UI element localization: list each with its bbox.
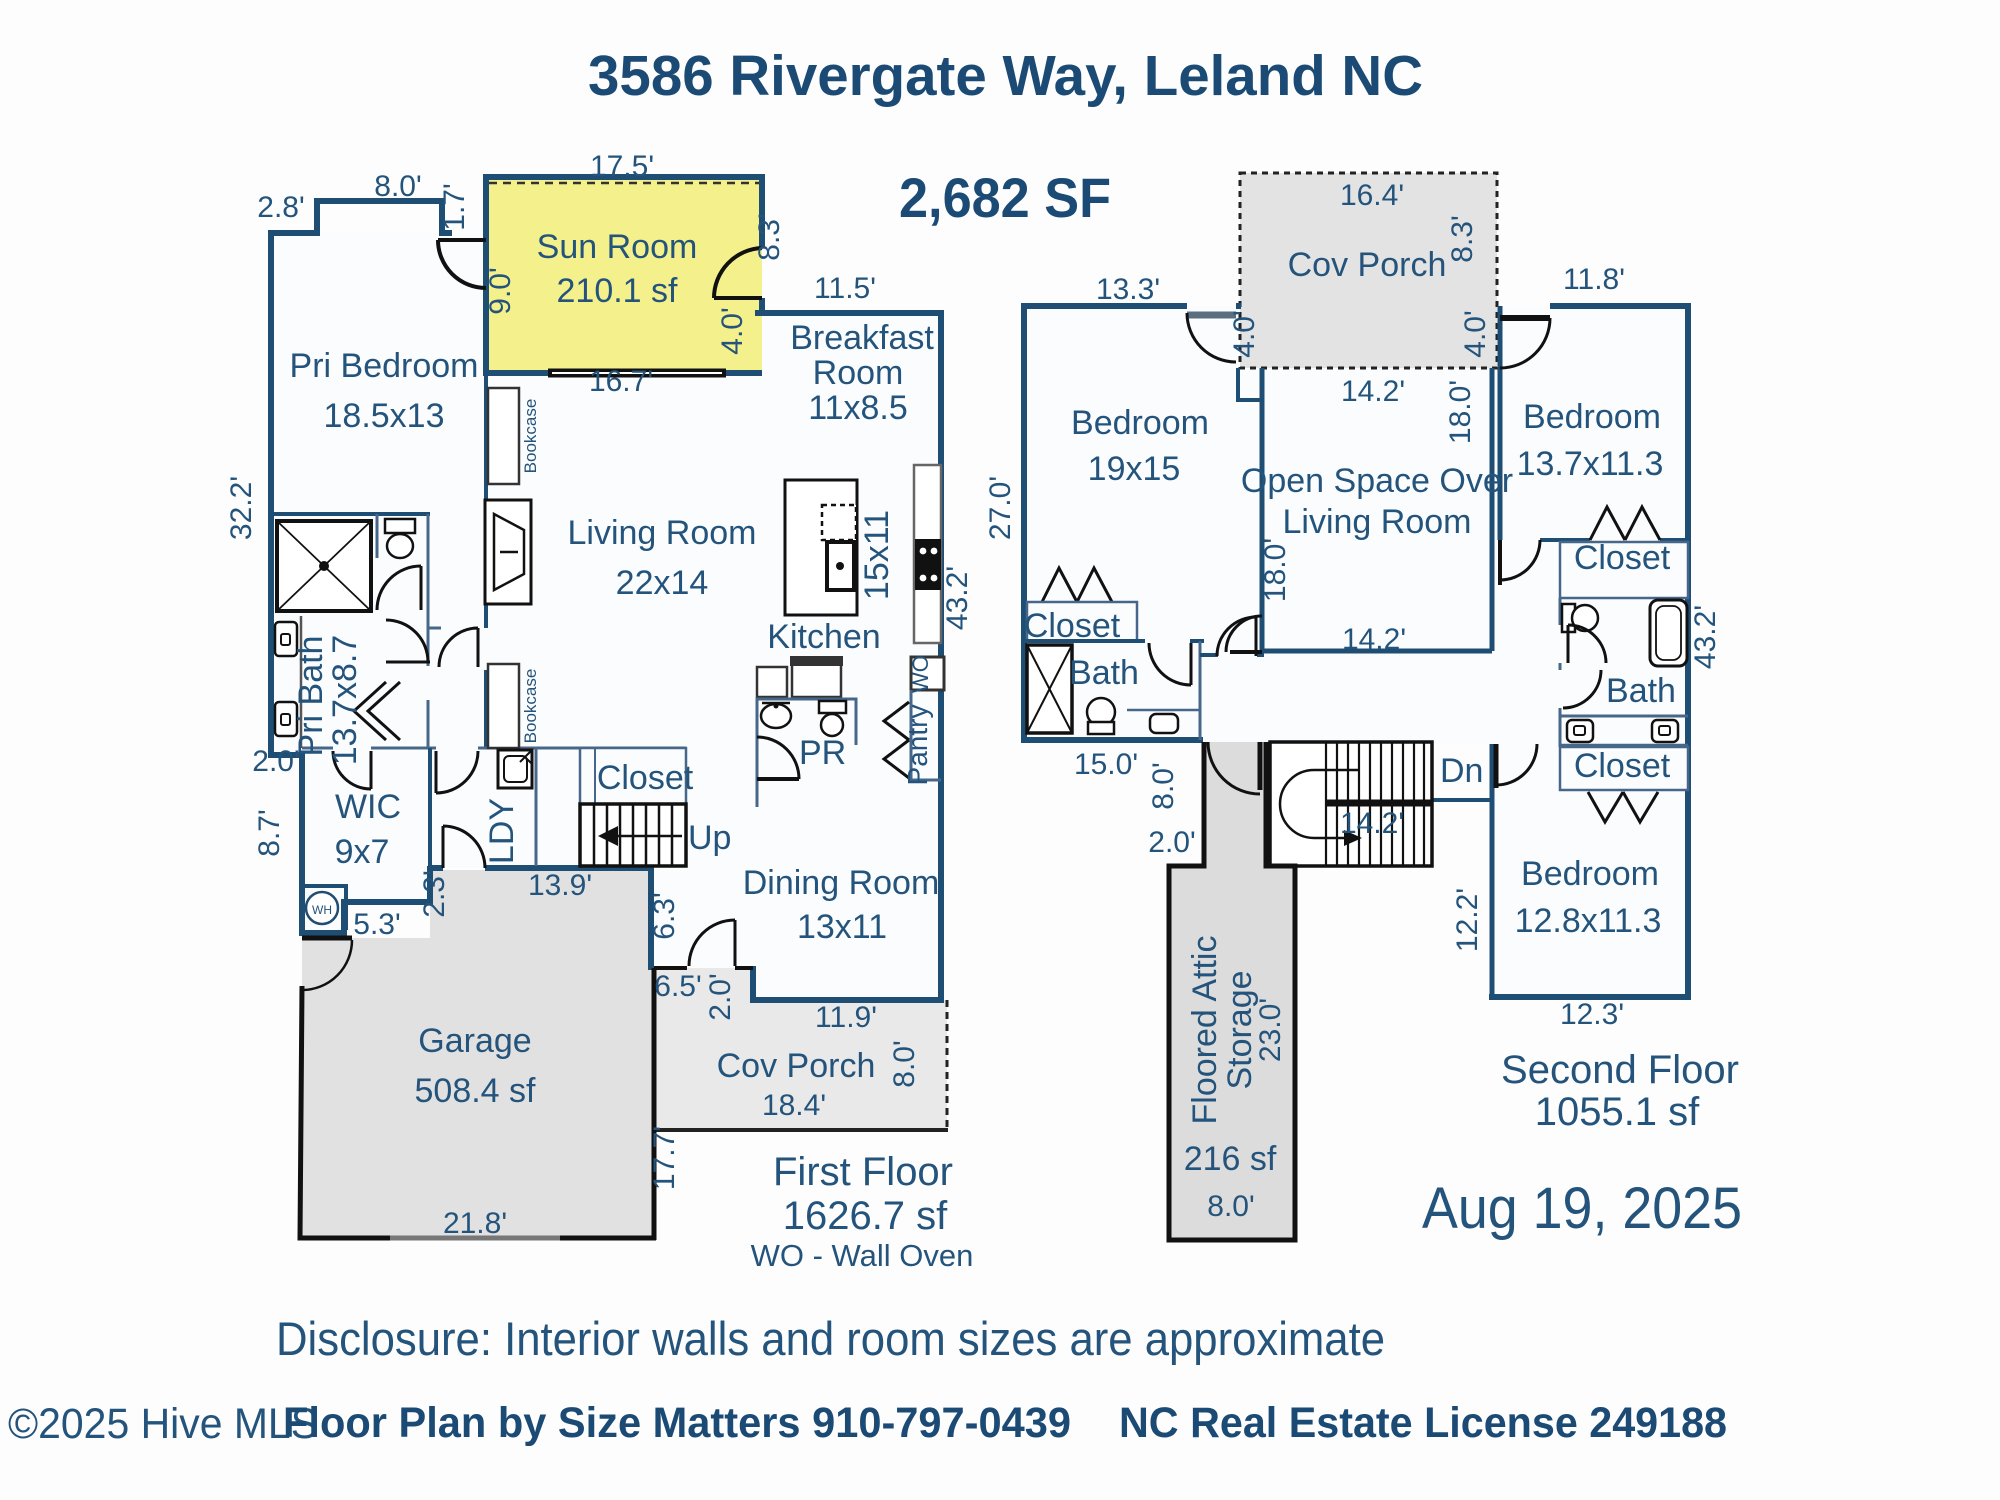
svg-text:Bookcase: Bookcase bbox=[521, 669, 540, 744]
svg-text:8.0': 8.0' bbox=[1147, 762, 1180, 809]
svg-text:11.5': 11.5' bbox=[814, 272, 876, 305]
svg-text:Room: Room bbox=[813, 354, 904, 392]
svg-text:43.2': 43.2' bbox=[941, 566, 974, 630]
svg-text:18.0': 18.0' bbox=[1259, 538, 1292, 602]
svg-text:11.8': 11.8' bbox=[1563, 263, 1625, 296]
svg-text:9x7: 9x7 bbox=[335, 833, 390, 871]
svg-text:Bedroom: Bedroom bbox=[1521, 855, 1659, 893]
svg-text:19x15: 19x15 bbox=[1088, 450, 1181, 488]
svg-text:Pri Bedroom: Pri Bedroom bbox=[290, 347, 479, 385]
svg-text:23.0': 23.0' bbox=[1254, 998, 1287, 1062]
svg-text:Bookcase: Bookcase bbox=[521, 399, 540, 474]
svg-text:32.2': 32.2' bbox=[225, 476, 258, 540]
svg-text:18.5x13: 18.5x13 bbox=[324, 397, 445, 435]
svg-text:Living Room: Living Room bbox=[568, 514, 757, 552]
svg-text:11x8.5: 11x8.5 bbox=[808, 389, 908, 427]
svg-text:15x11: 15x11 bbox=[858, 510, 896, 600]
svg-text:Open Space Over: Open Space Over bbox=[1241, 462, 1513, 500]
svg-text:12.8x11.3: 12.8x11.3 bbox=[1515, 902, 1662, 940]
svg-text:6.3': 6.3' bbox=[648, 892, 681, 939]
svg-text:1055.1 sf: 1055.1 sf bbox=[1535, 1090, 1700, 1134]
svg-text:16.7': 16.7' bbox=[589, 365, 653, 398]
svg-text:Closet: Closet bbox=[1574, 539, 1671, 577]
svg-text:17.7': 17.7' bbox=[648, 1126, 681, 1190]
svg-text:14.2': 14.2' bbox=[1340, 807, 1404, 840]
svg-text:210.1 sf: 210.1 sf bbox=[557, 272, 679, 310]
svg-text:18.0': 18.0' bbox=[1444, 380, 1477, 444]
svg-text:Cov Porch: Cov Porch bbox=[717, 1047, 876, 1085]
svg-text:Disclosure: Interior walls and: Disclosure: Interior walls and room size… bbox=[276, 1312, 1385, 1365]
svg-text:Dn: Dn bbox=[1440, 752, 1483, 790]
svg-text:8.0': 8.0' bbox=[1207, 1190, 1254, 1223]
svg-text:Breakfast: Breakfast bbox=[790, 319, 934, 357]
svg-text:LDY: LDY bbox=[483, 798, 521, 864]
svg-text:13.7x11.3: 13.7x11.3 bbox=[1517, 445, 1664, 483]
svg-text:©2025 Hive MLS: ©2025 Hive MLS bbox=[8, 1400, 318, 1448]
svg-text:8.7': 8.7' bbox=[253, 809, 286, 856]
svg-text:2.3': 2.3' bbox=[418, 870, 451, 917]
svg-text:43.2': 43.2' bbox=[1689, 605, 1722, 669]
svg-text:18.4': 18.4' bbox=[762, 1089, 826, 1122]
svg-text:14.2': 14.2' bbox=[1342, 623, 1406, 656]
svg-text:WO - Wall Oven: WO - Wall Oven bbox=[751, 1238, 974, 1273]
svg-text:Bedroom: Bedroom bbox=[1071, 404, 1209, 442]
svg-text:Bath: Bath bbox=[1069, 654, 1139, 692]
svg-text:17.5': 17.5' bbox=[590, 150, 654, 183]
svg-text:3586 Rivergate Way, Leland NC: 3586 Rivergate Way, Leland NC bbox=[588, 44, 1423, 108]
svg-text:Closet: Closet bbox=[1024, 607, 1121, 645]
svg-text:Floored Attic: Floored Attic bbox=[1186, 936, 1224, 1125]
svg-text:Dining Room: Dining Room bbox=[743, 864, 940, 902]
svg-text:Sun Room: Sun Room bbox=[537, 228, 698, 266]
svg-text:Pri Bath: Pri Bath bbox=[292, 636, 330, 757]
svg-text:WH: WH bbox=[312, 903, 332, 917]
svg-text:1.7': 1.7' bbox=[438, 183, 471, 230]
svg-text:Bath: Bath bbox=[1606, 672, 1676, 710]
svg-text:Bedroom: Bedroom bbox=[1523, 398, 1661, 436]
svg-text:12.3': 12.3' bbox=[1560, 998, 1624, 1031]
svg-text:2.0': 2.0' bbox=[704, 973, 737, 1020]
svg-text:PR: PR bbox=[799, 734, 846, 772]
svg-text:Up: Up bbox=[688, 819, 731, 857]
svg-text:2.8': 2.8' bbox=[257, 191, 304, 224]
svg-text:Floor Plan by Size Matters 910: Floor Plan by Size Matters 910-797-0439 bbox=[283, 1399, 1071, 1447]
svg-text:4.0': 4.0' bbox=[1459, 310, 1492, 357]
svg-text:8.0': 8.0' bbox=[374, 170, 421, 203]
svg-text:NC Real Estate License 249188: NC Real Estate License 249188 bbox=[1119, 1399, 1727, 1447]
svg-text:14.2': 14.2' bbox=[1341, 375, 1405, 408]
svg-text:2.0': 2.0' bbox=[1148, 826, 1195, 859]
svg-text:Closet: Closet bbox=[597, 759, 694, 797]
svg-text:13.7x8.7: 13.7x8.7 bbox=[326, 635, 364, 765]
svg-text:Cov Porch: Cov Porch bbox=[1288, 246, 1447, 284]
svg-text:Living Room: Living Room bbox=[1283, 503, 1472, 541]
svg-text:Closet: Closet bbox=[1574, 747, 1671, 785]
svg-text:1626.7 sf: 1626.7 sf bbox=[783, 1194, 948, 1238]
svg-text:9.0': 9.0' bbox=[484, 267, 517, 314]
svg-text:508.4 sf: 508.4 sf bbox=[415, 1072, 537, 1110]
svg-text:13x11: 13x11 bbox=[797, 908, 887, 946]
svg-text:13.3': 13.3' bbox=[1096, 273, 1160, 306]
svg-text:Second Floor: Second Floor bbox=[1501, 1048, 1739, 1092]
svg-text:First Floor: First Floor bbox=[773, 1150, 953, 1194]
svg-text:2.0': 2.0' bbox=[252, 745, 299, 778]
svg-text:13.9': 13.9' bbox=[528, 869, 592, 902]
svg-text:2,682 SF: 2,682 SF bbox=[899, 166, 1111, 229]
svg-text:216 sf: 216 sf bbox=[1184, 1140, 1277, 1178]
svg-text:4.0': 4.0' bbox=[1228, 310, 1261, 357]
svg-text:Garage: Garage bbox=[418, 1022, 531, 1060]
svg-text:15.0': 15.0' bbox=[1074, 748, 1138, 781]
svg-text:22x14: 22x14 bbox=[616, 564, 709, 602]
svg-text:12.2': 12.2' bbox=[1451, 888, 1484, 952]
svg-text:WO: WO bbox=[908, 655, 933, 693]
svg-text:11.9': 11.9' bbox=[815, 1001, 877, 1034]
svg-text:4.0': 4.0' bbox=[716, 307, 749, 354]
svg-text:Aug 19, 2025: Aug 19, 2025 bbox=[1422, 1176, 1742, 1241]
svg-text:5.3': 5.3' bbox=[353, 908, 400, 941]
svg-text:Kitchen: Kitchen bbox=[767, 618, 880, 656]
svg-text:16.4': 16.4' bbox=[1340, 179, 1404, 212]
svg-text:21.8': 21.8' bbox=[443, 1207, 507, 1240]
svg-text:27.0': 27.0' bbox=[984, 476, 1017, 540]
svg-text:8.3': 8.3' bbox=[753, 213, 786, 260]
svg-text:Pantry: Pantry bbox=[902, 705, 933, 786]
svg-text:6.5': 6.5' bbox=[654, 970, 701, 1003]
svg-text:8.0': 8.0' bbox=[888, 1040, 921, 1087]
svg-text:8.3': 8.3' bbox=[1446, 215, 1479, 262]
svg-text:WIC: WIC bbox=[335, 788, 401, 826]
